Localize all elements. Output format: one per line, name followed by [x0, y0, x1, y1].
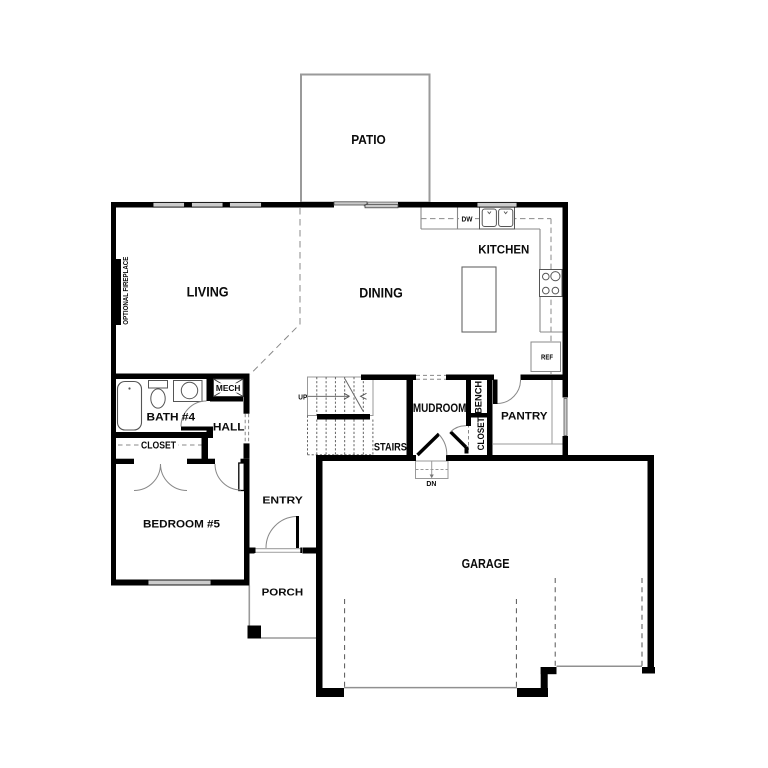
- svg-text:STAIRS: STAIRS: [374, 442, 407, 454]
- svg-text:KITCHEN: KITCHEN: [478, 242, 529, 256]
- svg-text:HALL: HALL: [213, 422, 245, 434]
- svg-text:BENCH: BENCH: [474, 381, 485, 414]
- svg-text:GARAGE: GARAGE: [462, 557, 510, 571]
- svg-text:BEDROOM #5: BEDROOM #5: [143, 519, 220, 531]
- svg-text:LIVING: LIVING: [187, 284, 229, 300]
- svg-text:UP: UP: [298, 394, 307, 401]
- svg-text:DINING: DINING: [359, 285, 403, 301]
- svg-text:ENTRY: ENTRY: [262, 494, 303, 506]
- svg-text:DN: DN: [426, 481, 436, 488]
- svg-text:MECH: MECH: [216, 384, 241, 393]
- svg-text:REF: REF: [541, 354, 554, 361]
- svg-text:CLOSET: CLOSET: [141, 440, 176, 451]
- svg-text:DW: DW: [462, 215, 474, 224]
- svg-text:OPTIONAL FIREPLACE: OPTIONAL FIREPLACE: [123, 256, 130, 324]
- svg-text:PORCH: PORCH: [262, 587, 304, 599]
- svg-text:BATH #4: BATH #4: [147, 412, 196, 424]
- svg-text:MUDROOM: MUDROOM: [413, 403, 467, 415]
- svg-text:PANTRY: PANTRY: [501, 411, 548, 423]
- svg-text:PATIO: PATIO: [351, 132, 386, 147]
- svg-text:CLOSET: CLOSET: [476, 417, 487, 450]
